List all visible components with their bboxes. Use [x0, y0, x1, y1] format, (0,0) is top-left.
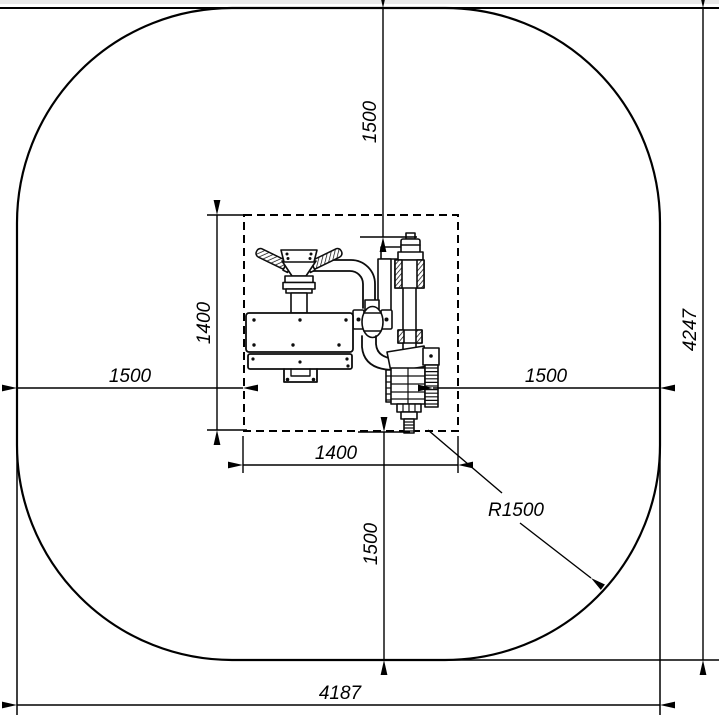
label-footprint-width: 1400 — [315, 443, 358, 464]
panel-assembly — [246, 313, 353, 369]
label-top-clearance: 1500 — [360, 100, 381, 143]
handle-head — [281, 250, 317, 313]
label-footprint-depth: 1400 — [194, 301, 215, 344]
label-left-clearance: 1500 — [109, 366, 152, 387]
label-overall-depth: 4247 — [680, 307, 701, 351]
technical-drawing-page: 1500 4247 1500 1500 1400 1400 1500 R1500… — [0, 0, 719, 715]
label-corner-radius: R1500 — [488, 500, 544, 521]
top-border-band — [0, 0, 719, 4]
label-right-clearance: 1500 — [525, 366, 568, 387]
drum-shaft — [397, 404, 421, 433]
mounting-bracket — [284, 369, 317, 382]
label-bottom-clearance: 1500 — [361, 522, 382, 565]
equipment-top-view — [246, 233, 439, 433]
label-overall-width: 4187 — [319, 683, 363, 704]
safety-zone-plan-drawing: 1500 4247 1500 1500 1400 1400 1500 R1500… — [0, 0, 719, 715]
resistance-drum — [386, 365, 438, 407]
